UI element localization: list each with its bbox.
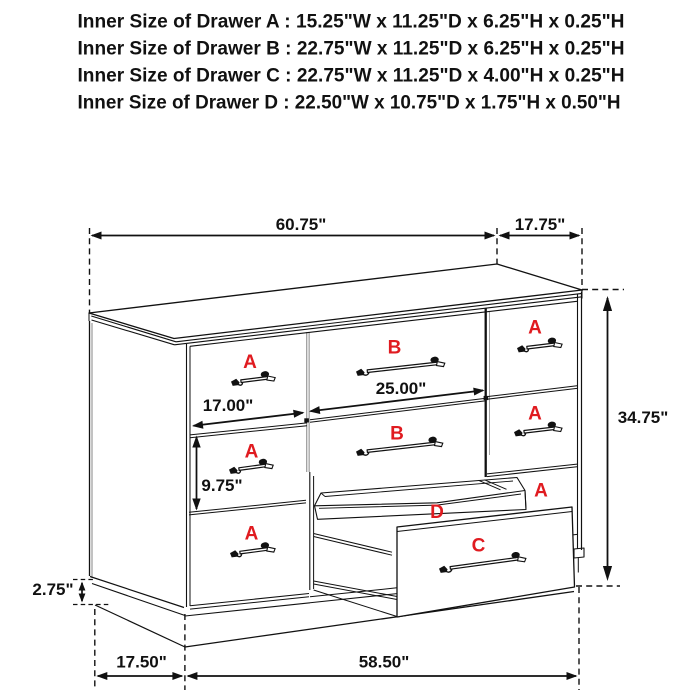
svg-text:60.75": 60.75" <box>276 215 327 234</box>
svg-text:34.75": 34.75" <box>618 408 669 427</box>
svg-text:A: A <box>528 404 542 425</box>
svg-text:17.00": 17.00" <box>203 396 254 415</box>
svg-text:9.75": 9.75" <box>201 476 242 495</box>
svg-text:Inner Size of Drawer D : 22.5: Inner Size of Drawer D : 22.50"W x 10.75… <box>78 93 621 114</box>
svg-text:17.75": 17.75" <box>515 215 566 234</box>
svg-text:D: D <box>430 502 444 523</box>
svg-text:A: A <box>534 481 548 502</box>
svg-text:Inner Size of Drawer B : 22.75: Inner Size of Drawer B : 22.75"W x 11.25… <box>78 39 625 60</box>
svg-text:C: C <box>472 536 486 557</box>
svg-text:17.50": 17.50" <box>116 653 167 672</box>
svg-text:A: A <box>245 524 259 545</box>
svg-text:25.00": 25.00" <box>376 379 427 398</box>
svg-text:A: A <box>243 352 257 373</box>
svg-text:A: A <box>528 318 542 339</box>
svg-text:B: B <box>388 338 402 359</box>
svg-text:58.50": 58.50" <box>359 653 410 672</box>
svg-text:B: B <box>390 424 404 445</box>
svg-text:Inner Size of Drawer A : 15.25: Inner Size of Drawer A : 15.25"W x 11.25… <box>78 12 625 33</box>
svg-text:2.75": 2.75" <box>32 580 73 599</box>
svg-text:Inner Size of Drawer C : 22.75: Inner Size of Drawer C : 22.75"W x 11.25… <box>78 66 625 87</box>
svg-text:A: A <box>245 442 259 463</box>
